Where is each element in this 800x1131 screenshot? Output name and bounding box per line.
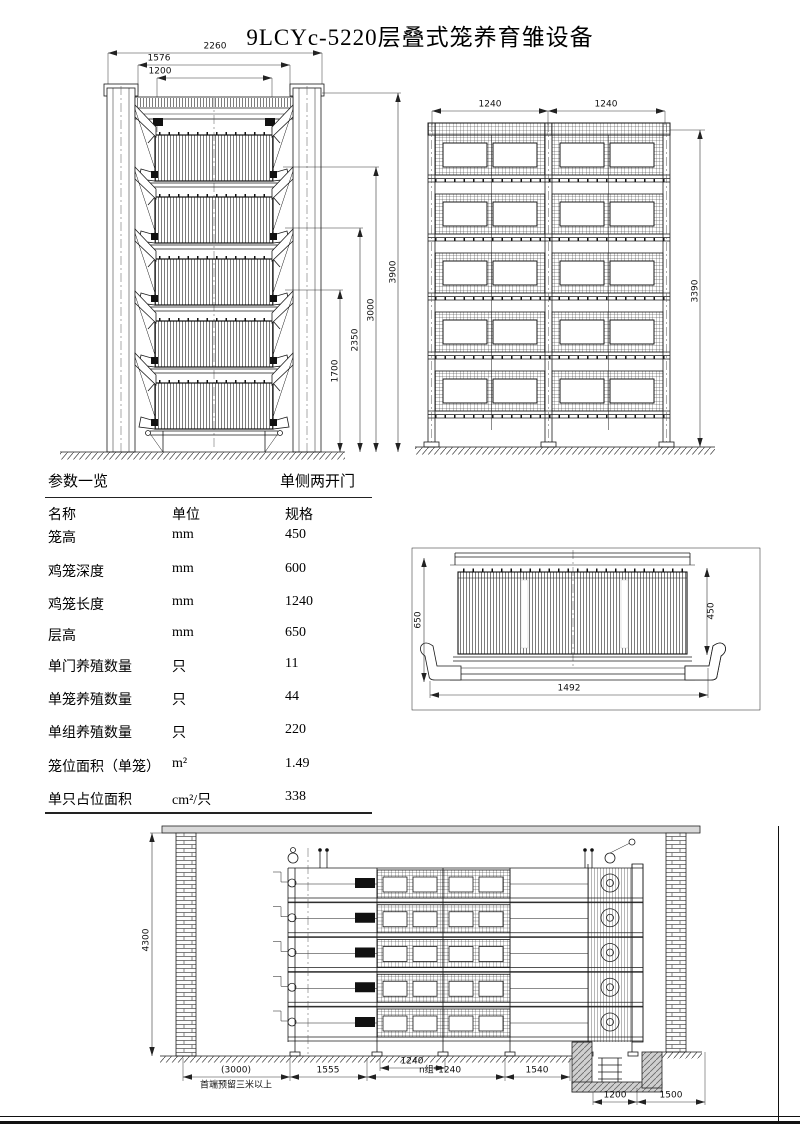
dim-label: 2260	[204, 43, 227, 52]
dim-note: 首端预留三米以上	[200, 1082, 272, 1091]
col-header-name: 名称	[48, 504, 76, 524]
section-view-drawing	[405, 540, 775, 720]
left-wall	[176, 833, 196, 1056]
dim-label: 1555	[317, 1067, 340, 1076]
ceiling-slab	[162, 826, 700, 833]
table-row: 笼位面积（单笼） m² 1.49	[45, 756, 377, 774]
end-view-drawing	[55, 40, 415, 465]
dim-label: 1200	[149, 68, 172, 77]
col-header-spec: 规格	[285, 504, 313, 524]
col-header-unit: 单位	[172, 504, 200, 524]
dim-label: 1200	[604, 1092, 627, 1101]
front-view-drawing	[415, 85, 745, 465]
table-row: 单笼养殖数量 只 44	[45, 689, 377, 707]
elevation-drawing	[140, 820, 790, 1122]
elevation-height-dim	[150, 833, 180, 1056]
table-rule-bottom	[45, 812, 372, 814]
section-mesh	[458, 572, 687, 654]
ground	[415, 447, 715, 455]
section-bottom-rails	[450, 657, 695, 680]
table-section-title: 参数一览	[48, 470, 108, 491]
table-row: 单门养殖数量 只 11	[45, 656, 377, 674]
table-row: 单只占位面积 cm²/只 338	[45, 789, 377, 807]
dim-label: 1240	[595, 101, 618, 110]
dim-label: 3000	[368, 299, 377, 322]
dim-label: 2350	[352, 329, 361, 352]
right-wall	[666, 833, 686, 1052]
ground	[60, 452, 345, 460]
dim-label: 4300	[143, 929, 152, 952]
dim-label: 650	[415, 611, 424, 628]
table-row: 单组养殖数量 只 220	[45, 722, 377, 740]
dim-label: (3000)	[221, 1067, 251, 1076]
section-top-rail	[450, 553, 695, 570]
dim-label: 1240	[479, 101, 502, 110]
dim-label: 1492	[558, 685, 581, 694]
dim-label: 3900	[390, 261, 399, 284]
front-view-feet	[424, 442, 674, 447]
dim-label: 450	[708, 602, 717, 619]
parameter-table: 参数一览 单侧两开门 名称 单位 规格 笼高 mm 450 鸡笼深度 mm 60…	[45, 466, 377, 816]
dim-label: 1500	[660, 1092, 683, 1101]
table-header-row: 名称 单位 规格	[45, 504, 377, 522]
elevation-top-fittings	[288, 839, 635, 868]
dim-label: 1576	[148, 55, 171, 64]
dim-label: 1700	[332, 360, 341, 383]
elevation-tier	[273, 868, 643, 902]
table-variant: 单侧两开门	[280, 470, 355, 491]
table-row: 笼高 mm 450	[45, 527, 377, 545]
drawing-sheet: 9LCYc-5220层叠式笼养育雏设备	[0, 0, 800, 1131]
dim-label: 1540	[526, 1067, 549, 1076]
table-rule-top	[45, 497, 372, 498]
dim-label: n组*1240	[419, 1067, 461, 1076]
dim-label: 3390	[692, 280, 701, 303]
table-title-row: 参数一览 单侧两开门	[45, 470, 377, 488]
table-row: 层高 mm 650	[45, 625, 377, 643]
table-row: 鸡笼深度 mm 600	[45, 561, 377, 579]
table-row: 鸡笼长度 mm 1240	[45, 594, 377, 612]
